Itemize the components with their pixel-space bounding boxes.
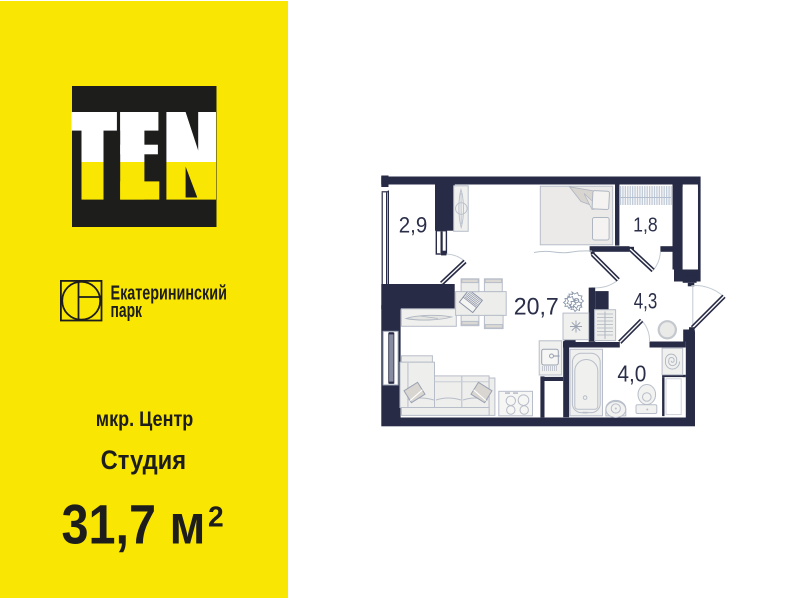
svg-text:2,9: 2,9 [399,212,428,237]
svg-text:2: 2 [208,502,224,534]
svg-text:4,3: 4,3 [634,289,658,314]
svg-text:Студия: Студия [101,445,187,475]
svg-text:4,0: 4,0 [617,361,646,387]
svg-text:парк: парк [111,299,143,322]
svg-text:мкр. Центр: мкр. Центр [96,407,194,431]
svg-text:31,7 м: 31,7 м [62,493,206,556]
svg-text:1,8: 1,8 [633,215,658,237]
svg-text:20,7: 20,7 [514,294,559,321]
